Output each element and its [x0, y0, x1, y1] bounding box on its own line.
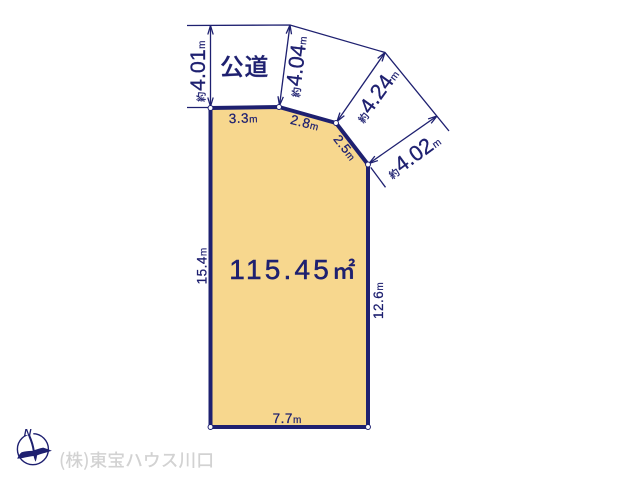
svg-text:m: m [197, 41, 208, 49]
svg-text:3.3: 3.3 [229, 111, 250, 127]
svg-text:m: m [375, 282, 386, 290]
svg-text:m: m [199, 248, 210, 256]
svg-text:4.01: 4.01 [186, 49, 210, 91]
svg-text:12.6: 12.6 [371, 291, 386, 319]
svg-text:m: m [249, 114, 258, 125]
svg-text:m: m [298, 36, 310, 46]
svg-text:15.4: 15.4 [195, 256, 210, 284]
svg-text:4.04: 4.04 [282, 43, 311, 88]
svg-text:m: m [293, 415, 301, 426]
svg-text:7.7: 7.7 [273, 411, 293, 426]
svg-text:115.45: 115.45 [229, 254, 332, 285]
